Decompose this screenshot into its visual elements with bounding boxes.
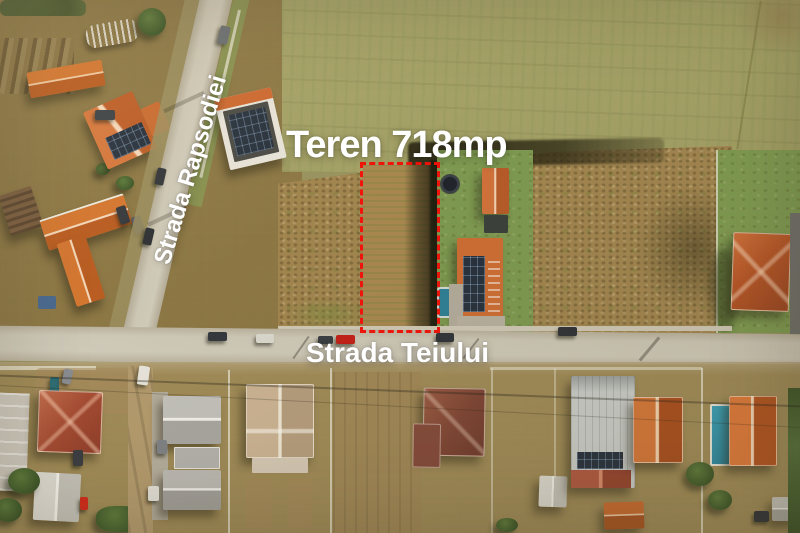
dirt-yard	[288, 478, 312, 528]
car-red-small	[80, 497, 88, 510]
round-bush	[138, 8, 166, 36]
car	[558, 327, 577, 336]
garage-dark-roof	[484, 215, 508, 233]
car	[148, 486, 159, 501]
tree	[116, 176, 134, 190]
tree	[8, 468, 40, 494]
shed-orange	[604, 501, 645, 529]
house-small-orange	[482, 168, 509, 214]
white-fence	[490, 367, 702, 370]
red-tile-section	[571, 470, 631, 488]
tree	[708, 490, 732, 510]
hedge-row	[0, 0, 86, 16]
roof-panel-rows	[488, 260, 500, 312]
maroon-wing	[412, 423, 441, 467]
tree	[496, 518, 518, 532]
gable-shadow	[571, 376, 635, 392]
house-gray-middle	[174, 447, 220, 469]
street-label-teiului: Strada Teiului	[306, 337, 489, 369]
car	[208, 332, 227, 341]
house-gray-gable	[163, 396, 221, 444]
shed-white	[538, 476, 567, 508]
car	[754, 511, 769, 522]
house-hip-orange-right	[731, 232, 792, 312]
house-orange-solar-right	[457, 238, 503, 320]
solar-panels	[463, 256, 485, 312]
car	[256, 334, 274, 343]
house-terracotta-hip	[37, 390, 103, 454]
fence-line	[701, 368, 703, 533]
house-gray-gable	[163, 470, 221, 510]
house-orange-gable	[633, 397, 683, 463]
blue-tarp	[38, 296, 56, 309]
house-tan-duplex	[246, 384, 314, 458]
car	[95, 110, 115, 120]
aerial-photo: Teren 718mp Strada Rapsodiei Strada Teiu…	[0, 0, 800, 533]
car	[157, 440, 167, 454]
hedge-strip	[788, 388, 800, 533]
house-silver-metal	[571, 376, 635, 488]
annex-light	[252, 458, 308, 473]
tree	[686, 462, 714, 486]
plot-area-title: Teren 718mp	[286, 124, 507, 167]
plot-boundary-outline	[360, 162, 440, 333]
house-orange-red	[729, 396, 777, 466]
solar-panels	[577, 452, 623, 469]
fence-line	[228, 370, 230, 533]
dirt-driveway	[333, 372, 421, 533]
trampoline	[440, 174, 460, 194]
field-brown-corner	[738, 0, 800, 54]
fence-line	[330, 368, 332, 533]
car	[73, 450, 83, 466]
dirt-yard	[246, 478, 272, 528]
building-sliver	[790, 213, 800, 335]
house-maroon	[412, 387, 485, 468]
house-white-gable	[33, 472, 81, 522]
fence-line	[554, 368, 556, 478]
